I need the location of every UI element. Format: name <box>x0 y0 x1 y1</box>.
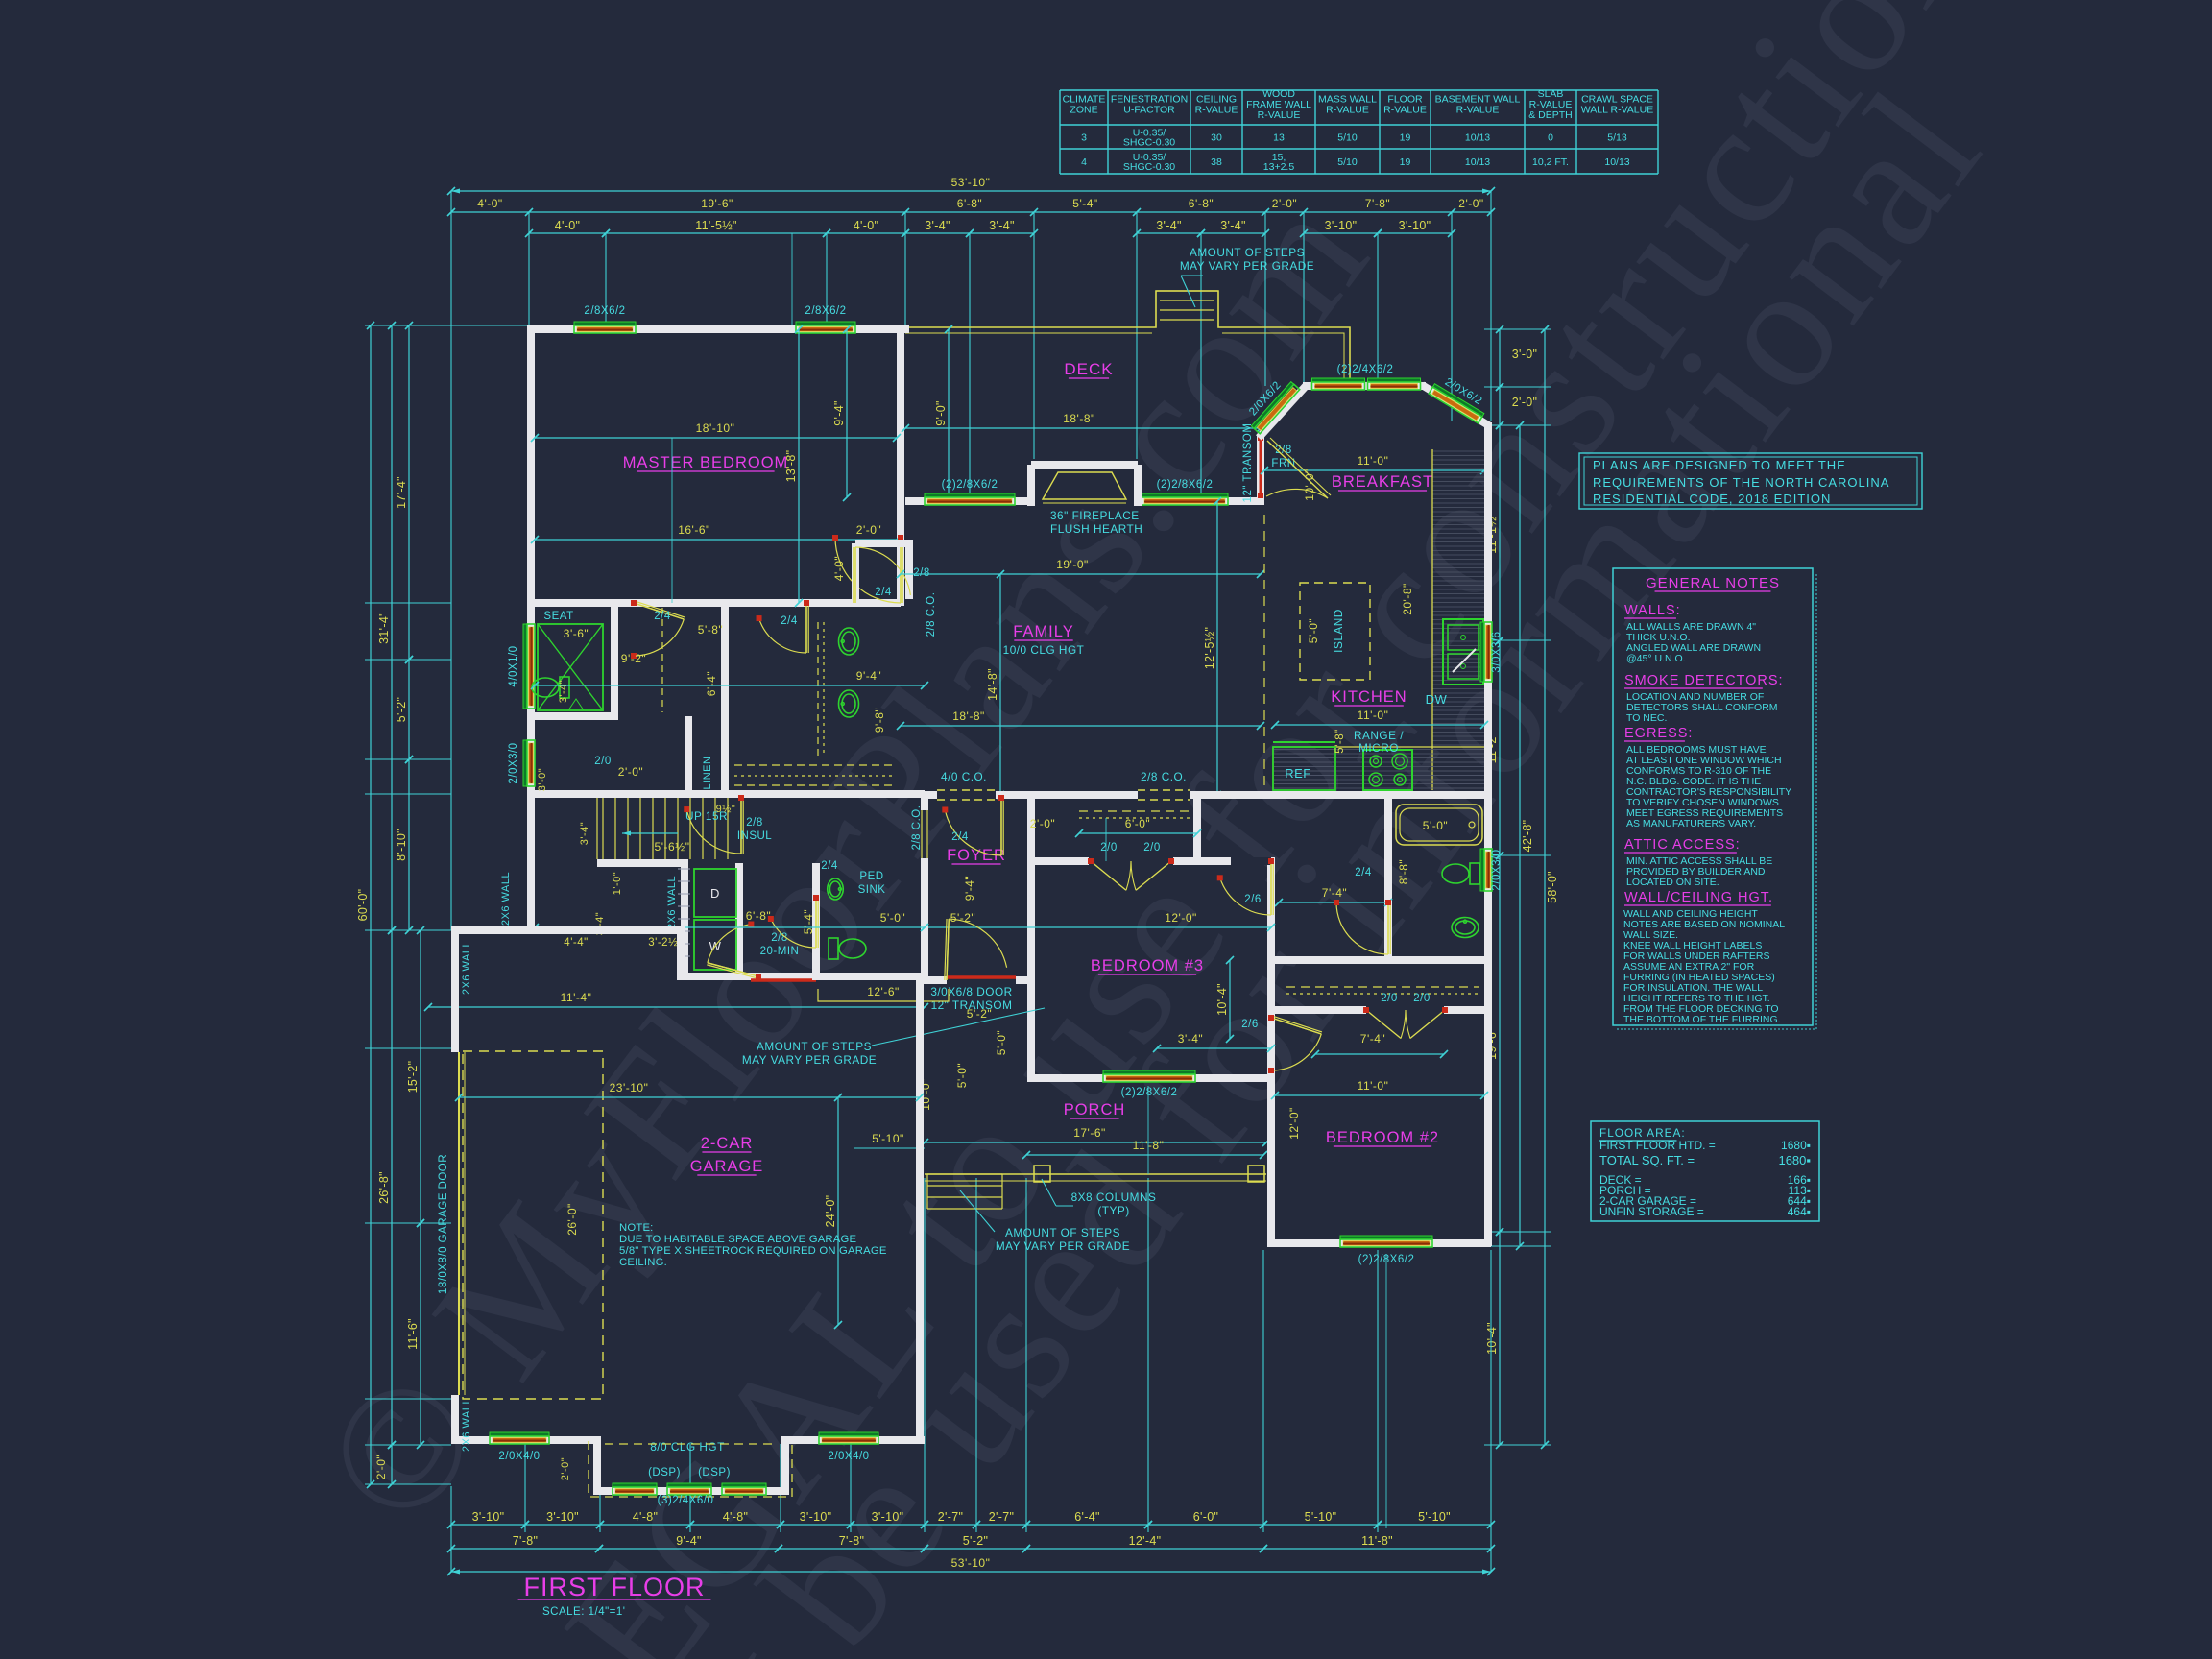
svg-text:BREAKFAST: BREAKFAST <box>1332 473 1433 491</box>
svg-text:2'-0": 2'-0" <box>1458 197 1483 210</box>
svg-text:14'-8": 14'-8" <box>986 668 999 701</box>
svg-text:2/4: 2/4 <box>1355 867 1372 878</box>
svg-text:3'-4": 3'-4" <box>989 219 1014 232</box>
svg-text:7'-8": 7'-8" <box>839 1534 864 1548</box>
svg-text:20-MIN: 20-MIN <box>760 946 800 957</box>
svg-text:9'-4": 9'-4" <box>856 669 881 683</box>
svg-text:5'-4": 5'-4" <box>802 909 815 934</box>
svg-text:SHGC-0.30: SHGC-0.30 <box>1123 137 1175 149</box>
svg-text:(DSP): (DSP) <box>648 1467 681 1479</box>
svg-text:2'-0": 2'-0" <box>1272 197 1297 210</box>
svg-text:AMOUNT OF STEPS: AMOUNT OF STEPS <box>757 1040 872 1053</box>
svg-text:PED: PED <box>859 871 883 882</box>
svg-text:KITCHEN: KITCHEN <box>1331 688 1407 706</box>
svg-text:12'-6": 12'-6" <box>867 985 900 998</box>
svg-text:MAY VARY PER GRADE: MAY VARY PER GRADE <box>1180 259 1314 273</box>
svg-text:FLUSH HEARTH: FLUSH HEARTH <box>1050 522 1142 536</box>
svg-text:2/0: 2/0 <box>1413 993 1431 1004</box>
svg-text:5'-10": 5'-10" <box>872 1132 904 1145</box>
svg-text:2/0: 2/0 <box>1143 842 1161 854</box>
svg-text:3'-0": 3'-0" <box>537 768 548 791</box>
svg-text:& DEPTH: & DEPTH <box>1528 109 1573 121</box>
svg-text:REQUIREMENTS OF THE NORTH CARO: REQUIREMENTS OF THE NORTH CAROLINA <box>1593 475 1889 490</box>
svg-text:5/13: 5/13 <box>1607 132 1627 144</box>
svg-text:FAMILY: FAMILY <box>1013 623 1073 640</box>
svg-text:2'-7": 2'-7" <box>938 1510 963 1524</box>
svg-text:AS MANUFATURERS VARY.: AS MANUFATURERS VARY. <box>1626 818 1756 829</box>
svg-text:3'-10": 3'-10" <box>1399 219 1431 232</box>
svg-text:2X6 WALL: 2X6 WALL <box>461 941 472 995</box>
svg-text:ISLAND: ISLAND <box>1332 609 1345 653</box>
svg-text:BEDROOM #3: BEDROOM #3 <box>1091 957 1204 974</box>
svg-text:THE BOTTOM OF THE FURRING.: THE BOTTOM OF THE FURRING. <box>1623 1014 1781 1025</box>
svg-text:10/13: 10/13 <box>1465 156 1490 168</box>
svg-text:12'-4": 12'-4" <box>1129 1534 1162 1548</box>
svg-text:5'-2": 5'-2" <box>950 911 975 925</box>
svg-text:31'-4": 31'-4" <box>377 612 391 644</box>
svg-text:60'-0": 60'-0" <box>356 889 370 922</box>
svg-text:4'-0": 4'-0" <box>832 556 846 581</box>
svg-text:2'-0": 2'-0" <box>560 1457 571 1480</box>
svg-text:DECK: DECK <box>1064 360 1113 378</box>
svg-text:4/0 C.O.: 4/0 C.O. <box>941 770 987 783</box>
svg-text:3'-10": 3'-10" <box>546 1510 579 1524</box>
svg-text:10'-4": 10'-4" <box>1485 1322 1499 1355</box>
svg-text:AMOUNT OF STEPS: AMOUNT OF STEPS <box>1190 246 1305 259</box>
svg-text:6'-8": 6'-8" <box>746 909 771 923</box>
svg-text:10,2 FT.: 10,2 FT. <box>1532 156 1569 168</box>
svg-text:SEAT: SEAT <box>543 611 573 622</box>
svg-text:3'-4": 3'-4" <box>579 822 590 845</box>
svg-text:11'-0": 11'-0" <box>1358 1079 1389 1093</box>
svg-text:53'-10": 53'-10" <box>951 176 991 189</box>
svg-text:3/0X6/8 DOOR: 3/0X6/8 DOOR <box>930 985 1012 998</box>
svg-text:5'-4": 5'-4" <box>1072 197 1097 210</box>
svg-text:MASTER BEDROOM: MASTER BEDROOM <box>623 454 789 471</box>
svg-text:1680▪: 1680▪ <box>1781 1139 1811 1152</box>
svg-text:9'-8": 9'-8" <box>873 708 886 733</box>
svg-text:464▪: 464▪ <box>1788 1205 1811 1218</box>
svg-text:13: 13 <box>1273 132 1285 144</box>
svg-text:5'-10": 5'-10" <box>1305 1510 1337 1524</box>
svg-text:9'-4": 9'-4" <box>676 1534 701 1548</box>
svg-text:3'-10": 3'-10" <box>872 1510 904 1524</box>
svg-text:4'-8": 4'-8" <box>723 1510 748 1524</box>
svg-text:3'-10": 3'-10" <box>800 1510 832 1524</box>
svg-text:5'-0": 5'-0" <box>955 1063 969 1088</box>
svg-text:6'-0": 6'-0" <box>1125 817 1150 830</box>
svg-text:0: 0 <box>1548 132 1553 144</box>
svg-text:(2)2/8X6/2: (2)2/8X6/2 <box>1157 479 1214 491</box>
svg-text:2/8: 2/8 <box>771 932 788 944</box>
svg-text:GARAGE: GARAGE <box>690 1158 764 1175</box>
svg-text:SINK: SINK <box>858 884 886 896</box>
svg-text:13+2.5: 13+2.5 <box>1263 161 1295 173</box>
svg-text:NOTE:: NOTE: <box>619 1222 654 1234</box>
svg-text:PLANS ARE DESIGNED TO MEET THE: PLANS ARE DESIGNED TO MEET THE <box>1593 458 1846 472</box>
svg-text:(2)2/8X6/2: (2)2/8X6/2 <box>1121 1087 1178 1098</box>
svg-text:MAY VARY PER GRADE: MAY VARY PER GRADE <box>996 1239 1130 1253</box>
svg-text:12" TRANSOM: 12" TRANSOM <box>1242 423 1254 503</box>
svg-text:UNFIN STORAGE =: UNFIN STORAGE = <box>1599 1205 1704 1218</box>
svg-text:5'-8": 5'-8" <box>1334 729 1346 753</box>
svg-text:2/8: 2/8 <box>913 567 930 579</box>
svg-text:6'-4": 6'-4" <box>1074 1510 1099 1524</box>
svg-text:MICRO: MICRO <box>1358 741 1399 755</box>
svg-text:36" FIREPLACE: 36" FIREPLACE <box>1050 509 1140 522</box>
svg-text:3'-4": 3'-4" <box>1178 1032 1203 1046</box>
svg-text:(2)2/8X6/2: (2)2/8X6/2 <box>942 479 998 491</box>
svg-text:3'-4": 3'-4" <box>558 680 569 703</box>
svg-text:4'-0": 4'-0" <box>854 219 878 232</box>
svg-text:EGRESS:: EGRESS: <box>1624 726 1693 741</box>
svg-text:9'-2": 9'-2" <box>621 652 646 665</box>
svg-text:5'-2": 5'-2" <box>967 1007 992 1021</box>
svg-text:(DSP): (DSP) <box>698 1467 731 1479</box>
svg-text:5'-6½": 5'-6½" <box>655 840 690 854</box>
svg-text:5/10: 5/10 <box>1337 156 1358 168</box>
svg-text:LOCATED ON SITE.: LOCATED ON SITE. <box>1626 877 1719 888</box>
svg-text:8'-10": 8'-10" <box>395 829 408 861</box>
svg-text:2/4: 2/4 <box>821 860 838 872</box>
svg-text:2/4: 2/4 <box>951 831 969 843</box>
svg-text:AMOUNT OF STEPS: AMOUNT OF STEPS <box>1005 1226 1120 1239</box>
svg-text:11'-8": 11'-8" <box>1361 1534 1393 1548</box>
svg-text:9'-4": 9'-4" <box>832 400 846 425</box>
svg-text:10/0 CLG HGT: 10/0 CLG HGT <box>1003 643 1085 657</box>
svg-text:6'-8": 6'-8" <box>957 197 982 210</box>
svg-text:3'-4": 3'-4" <box>1156 219 1181 232</box>
svg-text:D: D <box>710 886 720 901</box>
svg-text:4'-8": 4'-8" <box>633 1510 658 1524</box>
svg-text:6'-0": 6'-0" <box>1193 1510 1218 1524</box>
svg-text:11'-6": 11'-6" <box>406 1318 420 1350</box>
svg-text:2X6 WALL: 2X6 WALL <box>500 872 512 926</box>
svg-text:TO NEC.: TO NEC. <box>1626 712 1667 724</box>
svg-text:16'-6": 16'-6" <box>678 523 710 537</box>
svg-text:2'-0": 2'-0" <box>1512 396 1537 409</box>
svg-text:2/0: 2/0 <box>1100 842 1118 854</box>
svg-text:FIRST FLOOR HTD. =: FIRST FLOOR HTD. = <box>1599 1139 1716 1152</box>
svg-text:8X8 COLUMNS: 8X8 COLUMNS <box>1071 1190 1157 1204</box>
svg-text:5'-8": 5'-8" <box>698 623 723 637</box>
svg-text:8/0 CLG HGT: 8/0 CLG HGT <box>650 1440 725 1454</box>
svg-text:R-VALUE: R-VALUE <box>1383 105 1427 116</box>
svg-text:SHGC-0.30: SHGC-0.30 <box>1123 161 1175 173</box>
svg-text:2X6 WALL: 2X6 WALL <box>461 1398 472 1452</box>
svg-text:2/6: 2/6 <box>1244 894 1262 905</box>
svg-text:2'-0": 2'-0" <box>1030 817 1055 830</box>
svg-text:(2)2/4X6/2: (2)2/4X6/2 <box>1337 364 1394 375</box>
svg-text:WALLS:: WALLS: <box>1624 603 1681 618</box>
svg-text:R-VALUE: R-VALUE <box>1326 105 1369 116</box>
svg-text:11'-0": 11'-0" <box>1358 709 1389 722</box>
svg-text:2/0X3/0: 2/0X3/0 <box>1491 849 1503 890</box>
svg-text:2'-7": 2'-7" <box>989 1510 1014 1524</box>
svg-text:1'-0": 1'-0" <box>612 872 623 895</box>
svg-text:13'-8": 13'-8" <box>784 450 798 483</box>
svg-text:3'-10": 3'-10" <box>1325 219 1358 232</box>
svg-text:SMOKE DETECTORS:: SMOKE DETECTORS: <box>1624 673 1784 688</box>
svg-text:18'-10": 18'-10" <box>696 421 735 435</box>
svg-text:5'-0": 5'-0" <box>1423 819 1448 832</box>
svg-text:18'-8": 18'-8" <box>952 709 985 723</box>
svg-text:1680▪: 1680▪ <box>1778 1153 1811 1167</box>
svg-text:4: 4 <box>1081 156 1087 168</box>
svg-text:FLOOR AREA:: FLOOR AREA: <box>1599 1126 1686 1140</box>
svg-text:4'-0": 4'-0" <box>555 219 580 232</box>
svg-text:FIRST FLOOR: FIRST FLOOR <box>523 1573 705 1601</box>
svg-text:23'-10": 23'-10" <box>610 1081 649 1094</box>
svg-text:7'-4": 7'-4" <box>1360 1032 1385 1046</box>
svg-text:R-VALUE: R-VALUE <box>1195 105 1238 116</box>
svg-text:6'-4": 6'-4" <box>705 671 718 696</box>
svg-text:2/0X4/0: 2/0X4/0 <box>498 1451 540 1462</box>
svg-text:3'-6": 3'-6" <box>564 627 589 640</box>
svg-text:19'-6": 19'-6" <box>701 197 733 210</box>
svg-text:20'-8": 20'-8" <box>1401 583 1414 615</box>
svg-text:U-FACTOR: U-FACTOR <box>1123 105 1175 116</box>
svg-text:MAY VARY PER GRADE: MAY VARY PER GRADE <box>742 1053 877 1067</box>
svg-text:58'-0": 58'-0" <box>1546 871 1559 903</box>
svg-text:2'-0": 2'-0" <box>618 765 643 779</box>
svg-text:WALL R-VALUE: WALL R-VALUE <box>1581 105 1653 116</box>
svg-text:53'-10": 53'-10" <box>951 1556 991 1570</box>
svg-text:REF: REF <box>1285 766 1311 781</box>
svg-text:10/13: 10/13 <box>1465 132 1490 144</box>
svg-text:11'-4": 11'-4" <box>561 991 592 1004</box>
svg-text:19: 19 <box>1400 156 1411 168</box>
svg-text:RESIDENTIAL CODE, 2018 EDITION: RESIDENTIAL CODE, 2018 EDITION <box>1593 492 1831 506</box>
svg-text:(TYP): (TYP) <box>1097 1204 1129 1217</box>
svg-text:4/0X1/0: 4/0X1/0 <box>508 645 519 686</box>
svg-text:2/0: 2/0 <box>1381 993 1398 1004</box>
svg-text:10/13: 10/13 <box>1604 156 1629 168</box>
svg-text:4'-0": 4'-0" <box>477 197 502 210</box>
svg-text:2/8 C.O.: 2/8 C.O. <box>1141 770 1187 783</box>
svg-text:3'-4": 3'-4" <box>1220 219 1245 232</box>
svg-text:26'-0": 26'-0" <box>565 1203 579 1236</box>
svg-text:WALL/CEILING HGT.: WALL/CEILING HGT. <box>1624 890 1773 905</box>
svg-text:18/0X8/0 GARAGE DOOR: 18/0X8/0 GARAGE DOOR <box>438 1154 449 1294</box>
svg-text:3'-4": 3'-4" <box>925 219 950 232</box>
svg-text:INSUL: INSUL <box>737 830 772 842</box>
svg-text:11'-5½": 11'-5½" <box>695 219 736 232</box>
svg-text:7'-8": 7'-8" <box>1365 197 1390 210</box>
svg-text:3/0X3/6: 3/0X3/6 <box>1491 631 1503 672</box>
svg-text:7'-8": 7'-8" <box>513 1534 538 1548</box>
svg-text:8'-8": 8'-8" <box>1397 859 1410 884</box>
svg-text:2/0X3/0: 2/0X3/0 <box>508 742 519 783</box>
svg-text:PORCH: PORCH <box>1064 1101 1126 1118</box>
svg-text:19: 19 <box>1400 132 1411 144</box>
svg-text:ZONE: ZONE <box>1070 105 1097 116</box>
svg-text:26'-8": 26'-8" <box>377 1171 391 1204</box>
svg-text:2X6 WALL: 2X6 WALL <box>666 876 678 929</box>
svg-text:2/8 C.O.: 2/8 C.O. <box>911 805 923 851</box>
svg-text:DW: DW <box>1426 692 1448 707</box>
svg-text:LINEN: LINEN <box>702 757 713 790</box>
svg-text:17'-4": 17'-4" <box>395 476 408 509</box>
svg-text:4'-4": 4'-4" <box>564 937 588 949</box>
svg-text:5'-2": 5'-2" <box>963 1534 988 1548</box>
svg-text:3'-0": 3'-0" <box>1512 348 1537 361</box>
svg-text:10'-4": 10'-4" <box>1215 983 1229 1016</box>
svg-text:GENERAL NOTES: GENERAL NOTES <box>1646 575 1780 591</box>
svg-text:5/10: 5/10 <box>1337 132 1358 144</box>
svg-text:3'-10": 3'-10" <box>472 1510 505 1524</box>
svg-text:18'-8": 18'-8" <box>1063 412 1095 425</box>
svg-text:6'-8": 6'-8" <box>1189 197 1214 210</box>
svg-text:42'-8": 42'-8" <box>1521 820 1534 853</box>
svg-text:SCALE: 1/4"=1': SCALE: 1/4"=1' <box>542 1606 625 1618</box>
svg-text:2/0X4/0: 2/0X4/0 <box>828 1451 869 1462</box>
svg-text:2'-0": 2'-0" <box>856 523 881 537</box>
svg-text:2-CAR: 2-CAR <box>701 1135 754 1152</box>
svg-text:5'-2": 5'-2" <box>395 697 408 722</box>
svg-text:11'-0": 11'-0" <box>1358 454 1389 468</box>
svg-text:2/8X6/2: 2/8X6/2 <box>805 305 846 317</box>
svg-text:2/8 C.O.: 2/8 C.O. <box>926 592 937 637</box>
svg-text:DUE TO HABITABLE SPACE ABOVE G: DUE TO HABITABLE SPACE ABOVE GARAGE <box>619 1234 857 1245</box>
svg-text:24'-0": 24'-0" <box>824 1195 837 1228</box>
svg-text:5'-0": 5'-0" <box>1307 618 1320 643</box>
svg-text:2'-0": 2'-0" <box>374 1455 388 1479</box>
svg-text:5'-10": 5'-10" <box>1418 1510 1451 1524</box>
svg-text:5/8" TYPE X SHEETROCK REQUIRED: 5/8" TYPE X SHEETROCK REQUIRED ON GARAGE <box>619 1245 887 1257</box>
svg-text:3: 3 <box>1081 132 1087 144</box>
svg-text:5'-0": 5'-0" <box>995 1030 1008 1055</box>
svg-text:@45° U.N.O.: @45° U.N.O. <box>1626 653 1686 664</box>
svg-text:(3)2/4X6/0: (3)2/4X6/0 <box>658 1495 714 1506</box>
svg-text:2/4: 2/4 <box>654 611 671 622</box>
svg-text:CEILING.: CEILING. <box>619 1257 667 1268</box>
svg-text:R-VALUE: R-VALUE <box>1456 105 1500 116</box>
svg-text:9½": 9½" <box>716 804 736 815</box>
svg-text:38: 38 <box>1211 156 1222 168</box>
svg-text:2/4: 2/4 <box>781 615 798 627</box>
svg-text:12'-0": 12'-0" <box>1165 911 1197 925</box>
svg-text:RANGE /: RANGE / <box>1354 729 1404 742</box>
svg-text:30: 30 <box>1211 132 1222 144</box>
svg-text:TOTAL SQ. FT. =: TOTAL SQ. FT. = <box>1599 1153 1695 1167</box>
svg-text:15'-2": 15'-2" <box>406 1061 420 1094</box>
svg-text:19'-0": 19'-0" <box>1056 558 1089 571</box>
svg-text:9'-0": 9'-0" <box>934 400 948 425</box>
svg-text:7'-4": 7'-4" <box>1322 886 1347 900</box>
svg-text:5'-0": 5'-0" <box>880 911 905 925</box>
svg-text:2/6: 2/6 <box>1241 1019 1259 1030</box>
svg-text:2/8X6/2: 2/8X6/2 <box>584 305 625 317</box>
svg-text:R-VALUE: R-VALUE <box>1258 109 1301 121</box>
svg-text:BEDROOM #2: BEDROOM #2 <box>1326 1129 1439 1146</box>
svg-text:12'-5½": 12'-5½" <box>1203 627 1216 669</box>
svg-text:2/4: 2/4 <box>875 587 892 598</box>
svg-text:2/8: 2/8 <box>746 817 763 829</box>
svg-text:ATTIC ACCESS:: ATTIC ACCESS: <box>1624 837 1741 853</box>
svg-text:2/0: 2/0 <box>594 756 612 767</box>
svg-text:9'-4": 9'-4" <box>963 876 976 901</box>
svg-text:12'-0": 12'-0" <box>1287 1107 1301 1140</box>
svg-text:17'-6": 17'-6" <box>1073 1126 1106 1140</box>
